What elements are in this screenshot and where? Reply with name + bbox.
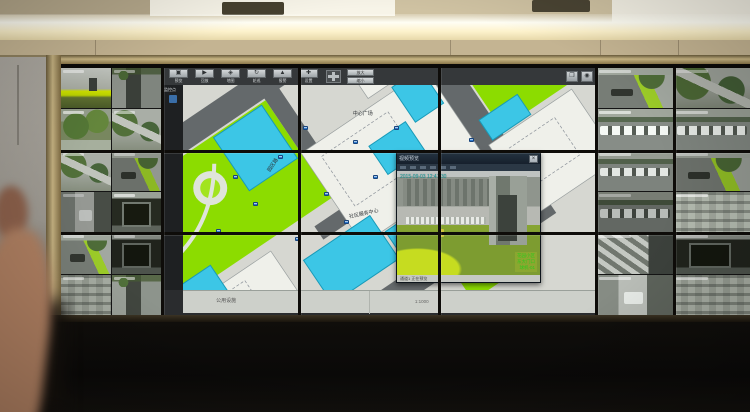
popup-titlebar[interactable]: 视频预览 × [397,153,540,164]
pan-dpad-control[interactable] [326,70,341,83]
ceiling-shadow [0,0,152,15]
alarm-icon: ▲ [273,69,292,78]
map-toolbar: ▣预览▶回放◈地图↻轮巡▲报警✚设置放大缩小❐◉ [163,68,597,85]
white-fence [406,217,486,224]
camera-tile-street[interactable] [674,151,750,191]
zoom-in-button[interactable]: 放大 [347,69,374,76]
videowall-frame-bottom [46,315,750,322]
camera-tile-garage[interactable] [112,192,162,232]
camera-tile-gate[interactable] [61,68,111,108]
camera-tile-garden[interactable] [61,109,111,149]
monitor-bezel [161,68,164,315]
control-room-photo: ▣预览▶回放◈地图↻轮巡▲报警✚设置放大缩小❐◉ 监控点 [0,0,750,412]
toolbar-button-patrol[interactable]: ↻轮巡 [245,69,268,84]
camera-list-icon [169,95,177,103]
camera-tile-street[interactable] [597,68,673,108]
camera-tile-facade[interactable] [61,275,111,315]
monitor-bezel [438,68,441,315]
map-place-label: 中心广场 [353,112,373,117]
left-camera-grid [61,68,162,315]
toolbar-button-fullscreen[interactable]: ❐ [566,71,578,82]
toolbar-button-emap[interactable]: ◈地图 [219,69,242,84]
camera-tile-garage[interactable] [674,233,750,273]
camera-marker-icon[interactable] [253,202,258,206]
monitor-bezel [298,68,301,315]
monitor-bezel [673,68,676,315]
camera-tile-parking[interactable] [597,192,673,232]
camera-tile-court[interactable] [674,68,750,108]
monitor-bezel [61,150,750,153]
map-status-bar: 公用设施 1:1000 [183,290,597,313]
camera-tile-parking[interactable] [597,151,673,191]
camera-tile-garage[interactable] [112,233,162,273]
camera-marker-icon[interactable] [233,175,238,179]
status-divider [369,291,370,314]
preview-icon: ▣ [169,69,188,78]
camera-marker-icon[interactable] [278,155,283,159]
camera-tile-stairs[interactable] [597,233,673,273]
toolbar-button-alarm[interactable]: ▲报警 [271,69,294,84]
camera-tile-alley[interactable] [112,68,162,108]
camera-tile-drive[interactable] [61,192,111,232]
popup-title: 视频预览 [399,155,419,162]
sidebar-label: 监控点 [164,87,176,92]
camera-tile-street[interactable] [112,151,162,191]
toolbar-button-preview[interactable]: ▣预览 [167,69,190,84]
status-text-left: 公用设施 [216,297,236,304]
map-scale-label: 1:1000 [415,299,429,304]
ceiling-vent [532,0,590,12]
live-camera-feed: 2015-09-03 12:47:30 花园小区 东大门口 球机-01 [397,171,540,275]
camera-marker-icon[interactable] [353,140,358,144]
camera-marker-icon[interactable] [303,126,308,130]
monitor-bezel [61,232,750,235]
video-preview-window[interactable]: 视频预览 × 2015-09-03 12:47:30 花园小区 东大门口 球机-… [396,152,541,283]
camera-tile-court[interactable] [61,151,111,191]
camera-marker-icon[interactable] [344,220,349,224]
videowall-lower-panel [0,320,750,412]
camera-tile-court[interactable] [112,109,162,149]
toolbar-button-playback[interactable]: ▶回放 [193,69,216,84]
ceiling-cove-light [0,14,750,42]
video-wall: ▣预览▶回放◈地图↻轮巡▲报警✚设置放大缩小❐◉ 监控点 [61,68,750,315]
osd-camera-label: 花园小区 东大门口 球机-01 [515,252,537,272]
popup-statusbar: 通道1 正在预览 [397,275,540,282]
monitor-bezel [595,68,598,315]
camera-tile-facade[interactable] [674,192,750,232]
camera-marker-icon[interactable] [373,175,378,179]
camera-marker-icon[interactable] [324,192,329,196]
map-sidebar[interactable]: 监控点 [163,85,183,290]
camera-tile-parking[interactable] [674,109,750,149]
camera-marker-icon[interactable] [394,126,399,130]
lawn [397,246,466,275]
camera-tile-drive[interactable] [597,275,673,315]
playback-icon: ▶ [195,69,214,78]
config-icon: ✚ [299,69,318,78]
background-buildings [403,179,489,206]
camera-tile-street[interactable] [61,233,111,273]
toolbar-button-lock[interactable]: ◉ [581,71,593,82]
patrol-icon: ↻ [247,69,266,78]
zoom-out-button[interactable]: 缩小 [347,77,374,84]
emap-icon: ◈ [221,69,240,78]
camera-tile-parking[interactable] [597,109,673,149]
videowall-frame-top [46,55,750,64]
camera-tile-alley[interactable] [112,275,162,315]
camera-tile-facade[interactable] [674,275,750,315]
popup-toolbar [397,164,540,171]
close-icon[interactable]: × [529,155,538,163]
camera-marker-icon[interactable] [469,138,474,142]
